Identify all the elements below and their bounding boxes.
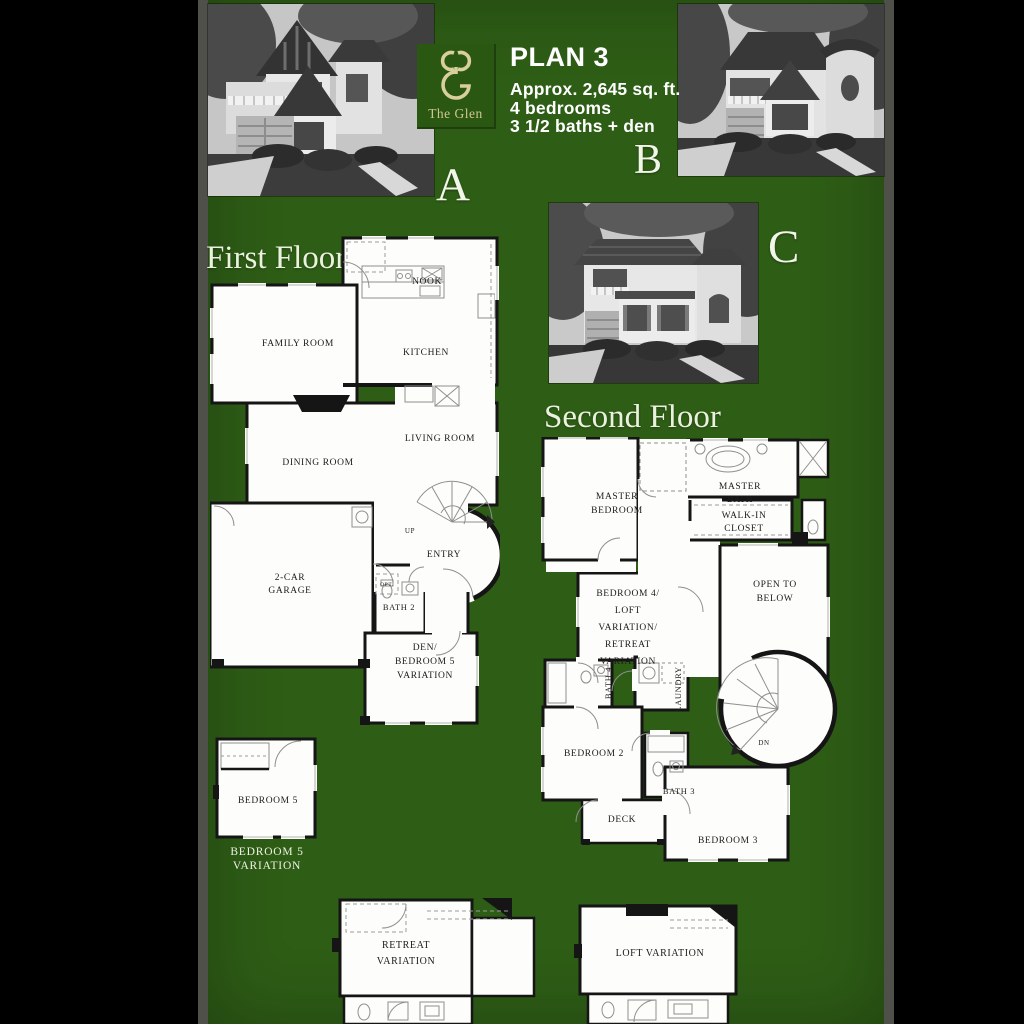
label-den-2: BEDROOM 5: [395, 657, 455, 667]
label-dn: DN: [758, 739, 769, 747]
caption-line-1: BEDROOM 5: [205, 846, 329, 860]
label-bath4: BATH 4: [603, 667, 613, 699]
house-b: [720, 32, 880, 144]
label-kitchen: KITCHEN: [403, 348, 449, 358]
label-master-2: BEDROOM: [591, 506, 643, 516]
house-c: [574, 239, 747, 347]
label-wic-2: CLOSET: [724, 524, 764, 534]
label-bed4-3: VARIATION/: [598, 623, 657, 633]
label-den-3: VARIATION: [397, 671, 453, 681]
the-glen-logo: The Glen: [417, 44, 496, 129]
label-opt: OPT.: [380, 582, 394, 588]
label-loft: LOFT VARIATION: [616, 948, 705, 959]
plan-baths: 3 1/2 baths + den: [510, 117, 681, 136]
bedroom5-variation-plan: BEDROOM 5: [213, 725, 321, 843]
logo-name: The Glen: [428, 106, 483, 122]
label-family-room: FAMILY ROOM: [262, 339, 334, 349]
label-entry: ENTRY: [427, 550, 461, 560]
bath-strip: [588, 994, 728, 1024]
label-open-1: OPEN TO: [753, 580, 797, 590]
house-c-illustration: [549, 203, 758, 383]
elevation-letter-c: C: [768, 220, 799, 274]
first-floor-plan: NOOK FAMILY ROOM KITCHEN DINING ROOM LIV…: [210, 236, 500, 732]
label-up: UP: [405, 527, 415, 535]
label-wic-1: WALK-IN: [722, 511, 767, 521]
elevation-letter-b: B: [634, 136, 662, 184]
label-bath2: BATH 2: [383, 602, 415, 612]
label-bed4-4: RETREAT: [605, 640, 651, 650]
label-retreat-2: VARIATION: [377, 956, 436, 967]
label-bedroom5: BEDROOM 5: [238, 796, 298, 806]
second-floor-heading: Second Floor: [544, 399, 721, 436]
label-bath3: BATH 3: [663, 786, 695, 796]
label-laundry: LAUNDRY: [673, 666, 683, 711]
plan-bedrooms: 4 bedrooms: [510, 99, 681, 118]
bedroom5-variation-caption: BEDROOM 5 VARIATION: [205, 846, 329, 873]
label-garage-1: 2-CAR: [275, 573, 306, 583]
label-den-1: DEN/: [413, 643, 438, 653]
plan-title: PLAN 3: [510, 42, 681, 73]
elevation-letter-a: A: [436, 158, 470, 212]
elevation-photo-b: [678, 4, 884, 176]
label-bed4-2: LOFT: [615, 606, 641, 616]
label-master-1: MASTER: [596, 492, 638, 502]
label-dining-room: DINING ROOM: [282, 458, 353, 468]
label-open-2: BELOW: [757, 594, 794, 604]
elevation-photo-a: [208, 4, 434, 196]
right-edge-strip: [884, 0, 894, 1024]
label-nook: NOOK: [412, 277, 442, 287]
house-b-illustration: [678, 4, 884, 176]
elevation-photo-c: [549, 203, 758, 383]
label-garage-2: GARAGE: [268, 586, 311, 596]
second-floor-plan: MASTER BEDROOM MASTER BATH WALK-IN CLOSE…: [538, 437, 838, 862]
caption-line-2: VARIATION: [205, 860, 329, 874]
label-mbath-2: BATH: [727, 494, 753, 504]
label-bed4-1: BEDROOM 4/: [596, 589, 659, 599]
loft-variation-plan: LOFT VARIATION: [568, 888, 748, 1024]
retreat-variation-plan: RETREAT VARIATION: [332, 878, 542, 1024]
label-bedroom2: BEDROOM 2: [564, 749, 624, 759]
label-retreat-1: RETREAT: [382, 940, 430, 951]
label-bedroom3: BEDROOM 3: [698, 836, 758, 846]
label-mbath-1: MASTER: [719, 482, 761, 492]
brochure-page: A B C The Glen PLAN 3 Approx. 2,645 sq. …: [0, 0, 1024, 1024]
glen-monogram-icon: [433, 48, 479, 106]
plan-header: PLAN 3 Approx. 2,645 sq. ft. 4 bedrooms …: [510, 42, 681, 136]
plan-sqft: Approx. 2,645 sq. ft.: [510, 80, 681, 99]
house-a-illustration: [208, 4, 434, 196]
label-living-room: LIVING ROOM: [405, 434, 475, 444]
fireplace: [293, 395, 350, 412]
label-deck: DECK: [608, 815, 636, 825]
label-bed4-5: VARIATION: [600, 657, 656, 667]
